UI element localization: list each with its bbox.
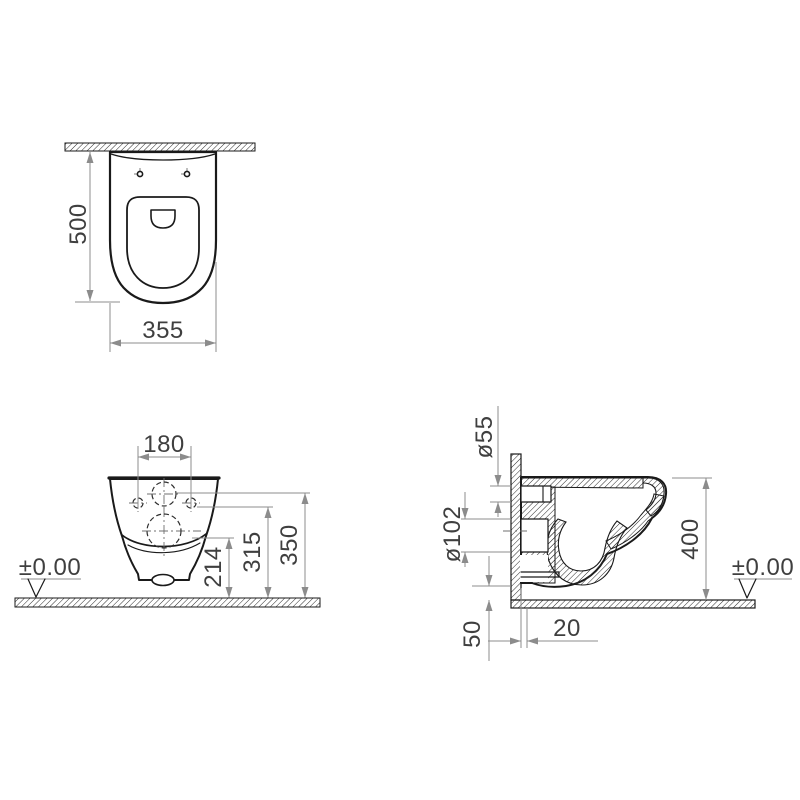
level-triangle-icon xyxy=(739,579,756,598)
wall-section-side xyxy=(511,454,521,600)
dimension-outlet-diameter-102: ø102 xyxy=(439,492,511,567)
floor-section-side xyxy=(511,600,755,608)
technical-drawing-canvas: 500 355 xyxy=(0,0,800,800)
dimension-wall-offset-20: 20 xyxy=(488,588,598,648)
datum-level-side: ±0.00 xyxy=(732,554,794,598)
wall-section-plan xyxy=(65,143,255,151)
dim-label-214: 214 xyxy=(200,546,227,588)
outlet-channel-opening xyxy=(521,519,548,552)
dim-label-50: 50 xyxy=(459,620,486,648)
base-recess xyxy=(520,555,548,582)
dim-label-d102: ø102 xyxy=(439,506,466,563)
datum-level-front: ±0.00 xyxy=(19,554,81,597)
dim-label-d55: ø55 xyxy=(471,416,498,459)
drain-outlet-boss xyxy=(152,575,174,586)
top-view: 500 355 xyxy=(65,143,255,352)
datum-label-front: ±0.00 xyxy=(19,554,81,581)
dim-label-350: 350 xyxy=(276,524,303,566)
floor-section-front xyxy=(15,598,320,607)
inlet-channel-opening xyxy=(521,486,551,502)
dim-label-355: 355 xyxy=(142,317,184,344)
datum-label-side: ±0.00 xyxy=(732,554,794,581)
toilet-section xyxy=(503,477,666,587)
dimension-overall-height-400: 400 xyxy=(672,478,712,600)
dimension-inlet-diameter-55: ø55 xyxy=(471,406,511,517)
front-view: 180 350 315 214 ±0.00 xyxy=(15,431,320,607)
dim-label-500: 500 xyxy=(65,203,92,245)
dimension-bottom-gap-50: 50 xyxy=(459,556,511,661)
drawing-sheet: 500 355 xyxy=(0,0,800,800)
dim-label-180: 180 xyxy=(143,431,185,458)
level-triangle-icon xyxy=(28,579,45,597)
side-view: ø55 ø102 400 50 xyxy=(439,406,794,661)
dim-label-315: 315 xyxy=(239,531,266,573)
dim-label-400: 400 xyxy=(677,518,704,560)
dim-label-20: 20 xyxy=(553,615,581,642)
